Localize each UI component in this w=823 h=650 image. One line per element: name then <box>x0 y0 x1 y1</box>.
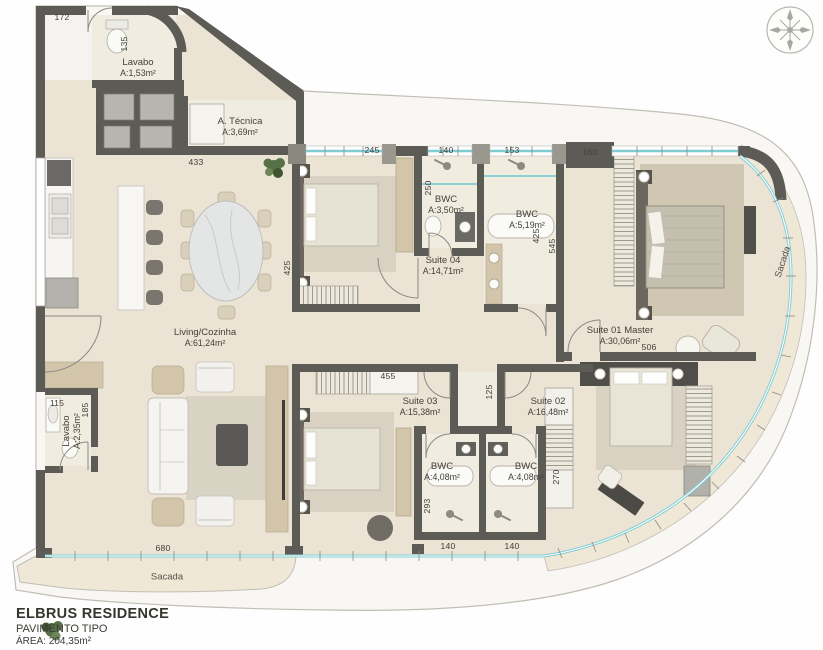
total-area: ÁREA: 204,35m² <box>16 636 169 647</box>
room-label-lavabo-upper: Lavabo A:1,53m² <box>120 57 156 79</box>
room-area: A:3,50m² <box>428 205 464 215</box>
entry-floor <box>45 15 92 80</box>
suite04-wardrobe <box>396 158 413 252</box>
sacada-bottom-label: Sacada <box>151 572 183 583</box>
armchair <box>196 496 234 526</box>
window-bench <box>744 206 756 254</box>
living-set <box>148 362 288 532</box>
room-label-area-tecnica: A. Técnica A:3,69m² <box>218 116 263 138</box>
room-area: A:1,53m² <box>120 68 156 78</box>
room-label-suite03: Suite 03 A:15,38m² <box>400 396 441 418</box>
room-area: A:2,35m² <box>72 413 82 449</box>
room-name: Suite 04 <box>426 255 461 266</box>
dim-bwc-suite04-side: 250 <box>423 181 433 196</box>
armchair <box>196 362 234 392</box>
room-name: A. Técnica <box>218 116 263 127</box>
compass-icon <box>767 7 813 53</box>
title-block: ELBRUS RESIDENCE PAVIMENTO TIPO ÁREA: 20… <box>16 606 169 647</box>
room-name: BWC <box>435 194 457 205</box>
room-name: Suite 03 <box>403 396 438 407</box>
room-name: Suite 01 Master <box>587 325 654 336</box>
pouf <box>367 515 393 541</box>
tv <box>282 400 285 500</box>
dim-lavabo-lower-top: 115 <box>50 398 64 408</box>
room-area: A:3,69m² <box>222 127 258 137</box>
dim-master-bottom: 506 <box>642 342 657 352</box>
room-label-suite02: Suite 02 A:16,48m² <box>528 396 569 418</box>
dim-suite03-top: 455 <box>381 371 396 381</box>
room-name: Lavabo <box>122 57 153 68</box>
coffee-table <box>216 424 248 466</box>
dim-bwc-suite04-top: 140 <box>439 145 454 155</box>
cooktop <box>47 160 71 186</box>
room-name: Lavabo <box>61 415 72 446</box>
room-area: A:14,71m² <box>423 266 464 276</box>
room-area: A:4,08m² <box>508 472 544 482</box>
suite02-closet <box>545 425 573 470</box>
room-label-bwc-suite04: BWC A:3,50m² <box>428 194 464 216</box>
dim-bwc-suite02-bottom: 140 <box>505 541 520 551</box>
floorplan-page: Lavabo A:1,53m² A. Técnica A:3,69m² Livi… <box>0 0 823 650</box>
master-closet <box>614 148 634 286</box>
room-name: Living/Cozinha <box>174 327 236 338</box>
floor-type: PAVIMENTO TIPO <box>16 623 169 635</box>
side-table <box>152 366 184 394</box>
dim-bwc-master-top: 153 <box>505 145 520 155</box>
refrigerator <box>46 278 78 308</box>
room-name: BWC <box>516 209 538 220</box>
dim-bwc-suite03-side: 293 <box>422 499 432 514</box>
dim-lavabo-side: 135 <box>119 37 129 52</box>
kitchen-window <box>36 158 45 306</box>
floorplan-drawing <box>0 0 823 650</box>
dim-entry-top: 172 <box>55 12 70 22</box>
room-label-living: Living/Cozinha A:61,24m² <box>174 327 236 349</box>
dim-living-bottom: 680 <box>156 543 171 553</box>
room-area: A:61,24m² <box>185 338 226 348</box>
dim-suite04-top: 245 <box>365 145 380 155</box>
room-label-suite04: Suite 04 A:14,71m² <box>423 255 464 277</box>
room-label-bwc-suite02: BWC A:4,08m² <box>508 461 544 483</box>
room-name: BWC <box>515 461 537 472</box>
dim-master-side-a: 425 <box>531 229 541 244</box>
dim-master-top-left: 160 <box>583 147 598 157</box>
dim-hall-width: 125 <box>484 385 494 400</box>
kitchen-island <box>118 186 144 310</box>
side-table <box>152 498 184 526</box>
room-area: A:30,06m² <box>600 336 641 346</box>
dim-bwc-suite03-bottom: 140 <box>441 541 456 551</box>
suite03-wardrobe <box>396 428 411 516</box>
room-name: Suite 02 <box>531 396 566 407</box>
project-name: ELBRUS RESIDENCE <box>16 606 169 622</box>
suite02-wardrobe <box>686 386 712 464</box>
dim-suite04-side: 425 <box>282 261 292 276</box>
dim-master-side-b: 545 <box>547 239 557 254</box>
room-area: A:16,48m² <box>528 407 569 417</box>
room-label-lavabo-lower: Lavabo A:2,35m² <box>61 413 83 449</box>
wood-floor-strip <box>45 362 103 388</box>
room-area: A:15,38m² <box>400 407 441 417</box>
room-area: A:4,08m² <box>424 472 460 482</box>
sofa <box>148 398 188 494</box>
room-name: BWC <box>431 461 453 472</box>
dim-suite02-closet-side: 270 <box>551 470 561 485</box>
dim-kitchen-top: 433 <box>189 157 204 167</box>
dining-table <box>189 201 263 301</box>
dim-lavabo-lower-side: 185 <box>80 403 90 418</box>
room-label-bwc-suite03: BWC A:4,08m² <box>424 461 460 483</box>
